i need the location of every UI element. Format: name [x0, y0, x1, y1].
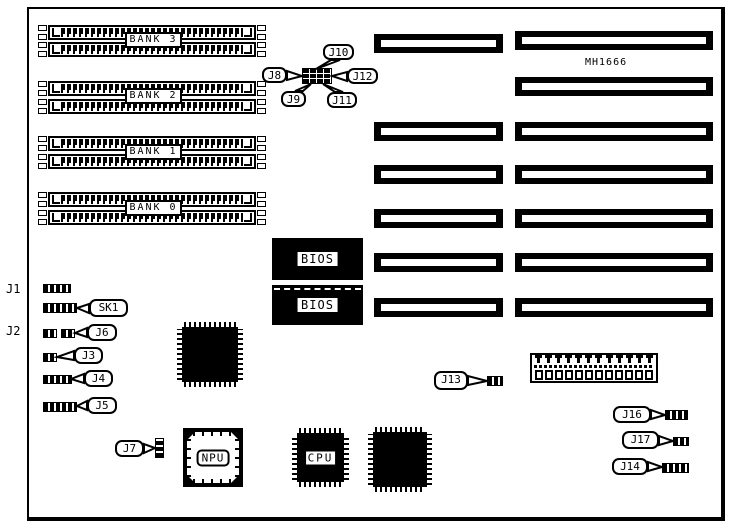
callout-j8: J8	[262, 67, 287, 83]
callout-j11: J11	[327, 92, 357, 108]
callout-j13: J13	[434, 371, 468, 390]
tail-j7	[144, 444, 155, 453]
callout-j3: J3	[74, 347, 103, 364]
tail-j12	[332, 72, 347, 81]
callout-j6: J6	[87, 324, 117, 341]
callout-j7: J7	[115, 440, 144, 457]
tail-j13	[468, 376, 487, 385]
tail-j8	[287, 71, 302, 80]
tail-j16	[651, 410, 665, 419]
tail-j14	[648, 462, 662, 471]
tail-j5	[77, 401, 87, 410]
tail-j10	[316, 60, 340, 69]
motherboard-diagram: J1 J2 BANK 3 BANK 2 BANK 1	[0, 0, 731, 527]
callout-j16: J16	[613, 406, 651, 423]
tail-sk1	[77, 304, 89, 313]
callout-j10: J10	[323, 44, 354, 60]
callout-j5: J5	[87, 397, 117, 414]
callout-j9: J9	[281, 91, 306, 107]
tail-j17	[659, 436, 673, 445]
tail-j4	[71, 374, 84, 383]
callout-j12: J12	[347, 68, 378, 84]
callout-sk1: SK1	[89, 299, 128, 317]
tail-j9	[295, 84, 311, 91]
callout-j4: J4	[84, 370, 113, 387]
tail-j6	[75, 328, 87, 337]
tail-j3	[57, 351, 74, 360]
callout-j17: J17	[622, 431, 659, 449]
callout-j14: J14	[612, 458, 648, 475]
tail-j11	[323, 84, 343, 92]
